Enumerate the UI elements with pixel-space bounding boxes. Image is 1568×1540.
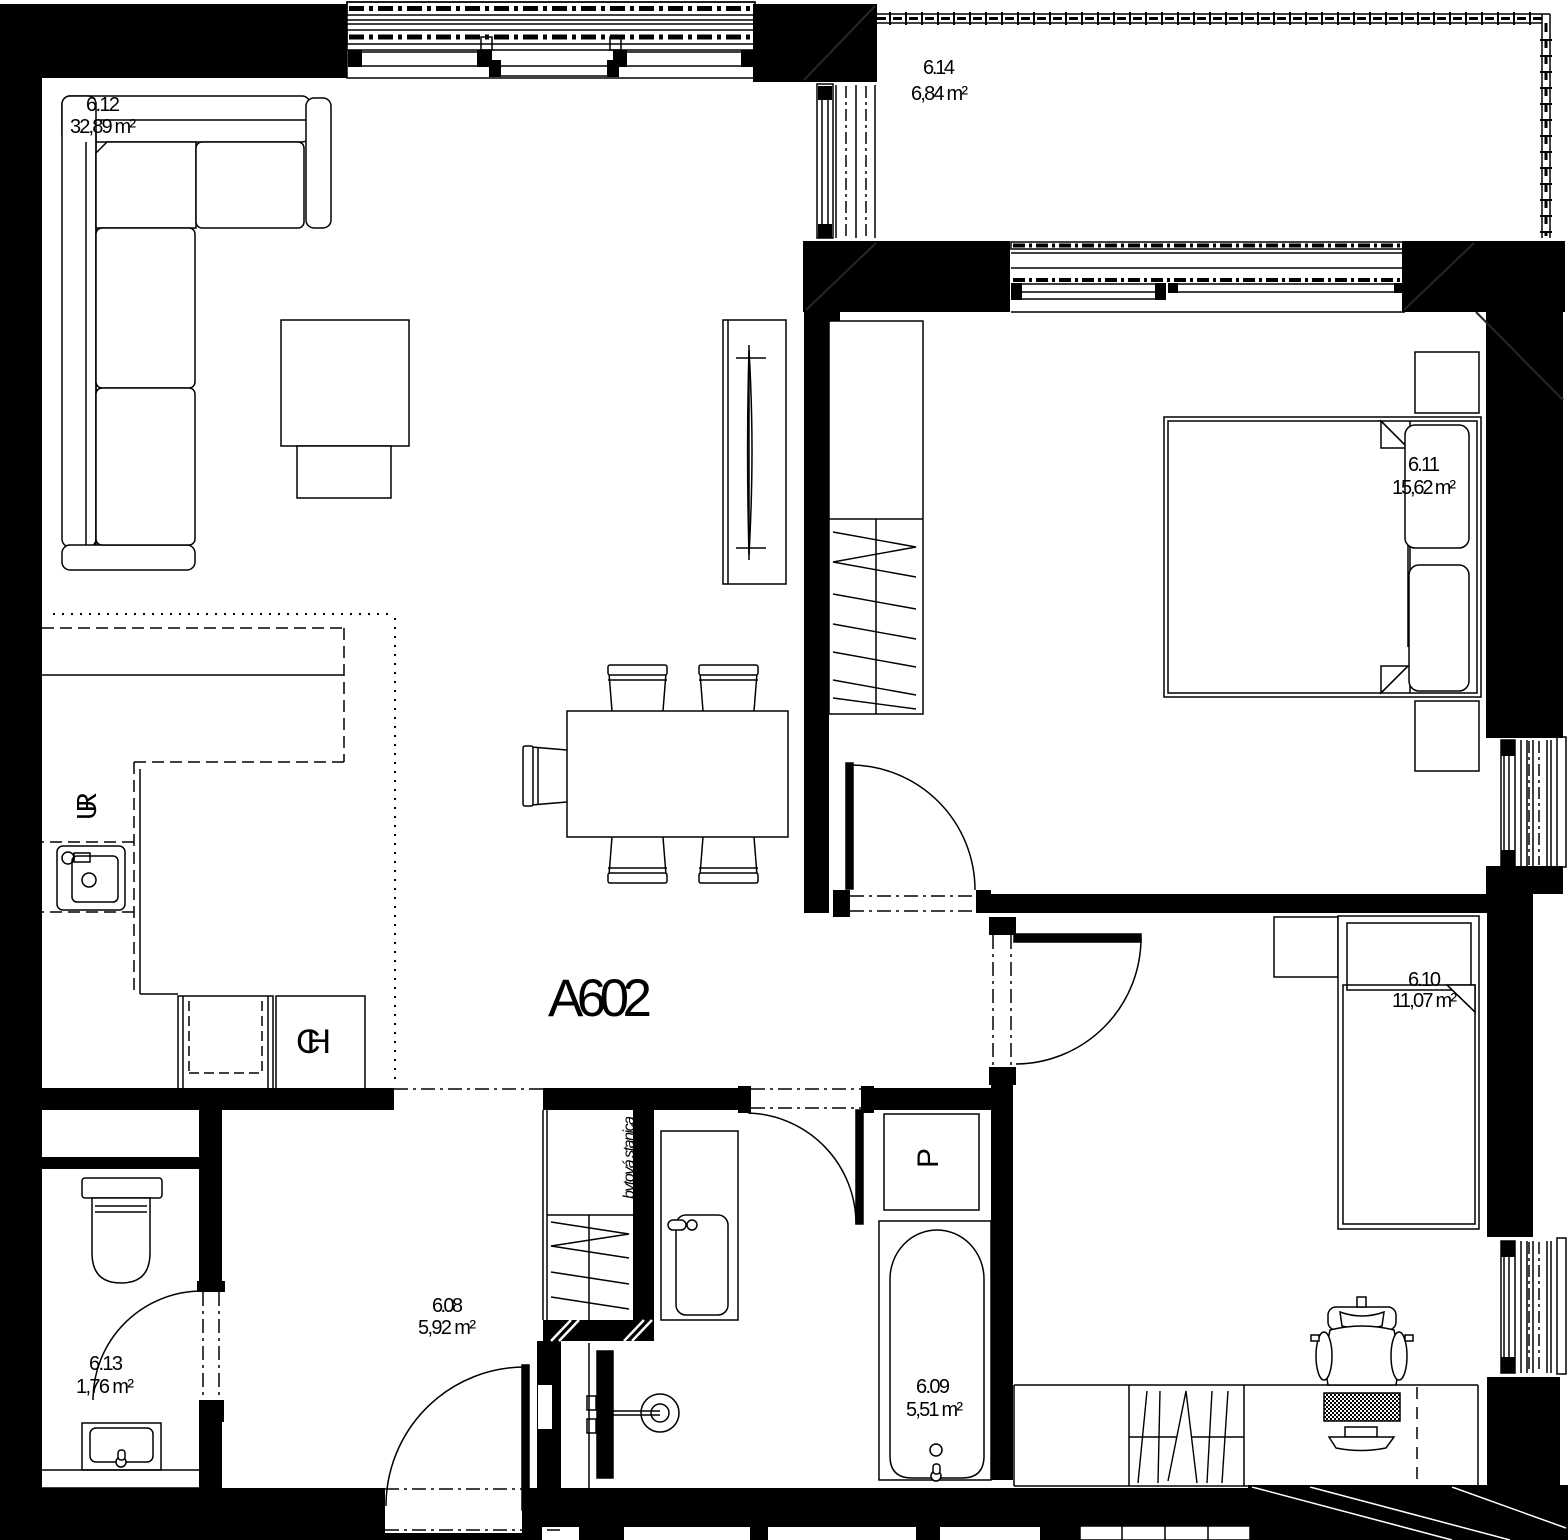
svg-text:6.09: 6.09	[916, 1376, 950, 1398]
svg-text:CH: CH	[296, 1023, 331, 1061]
svg-text:UR: UR	[71, 792, 102, 820]
svg-text:6.12: 6.12	[86, 94, 120, 116]
svg-text:6.13: 6.13	[89, 1353, 123, 1375]
svg-text:P: P	[912, 1148, 945, 1168]
svg-text:5,92 m²: 5,92 m²	[418, 1317, 476, 1339]
svg-text:6.11: 6.11	[1408, 454, 1440, 476]
svg-text:6.10: 6.10	[1408, 969, 1441, 991]
svg-text:6,84 m²: 6,84 m²	[911, 83, 968, 105]
svg-text:5,51 m²: 5,51 m²	[906, 1399, 963, 1421]
svg-text:15,62 m²: 15,62 m²	[1392, 477, 1456, 499]
svg-text:1,76 m²: 1,76 m²	[76, 1376, 134, 1398]
svg-text:6.14: 6.14	[923, 57, 955, 79]
svg-text:11,07 m²: 11,07 m²	[1392, 990, 1457, 1012]
svg-text:bytová stanica: bytová stanica	[621, 1116, 638, 1199]
svg-text:6.08: 6.08	[432, 1295, 463, 1317]
svg-text:A602: A602	[548, 969, 652, 1028]
svg-text:32,89 m²: 32,89 m²	[70, 116, 136, 138]
